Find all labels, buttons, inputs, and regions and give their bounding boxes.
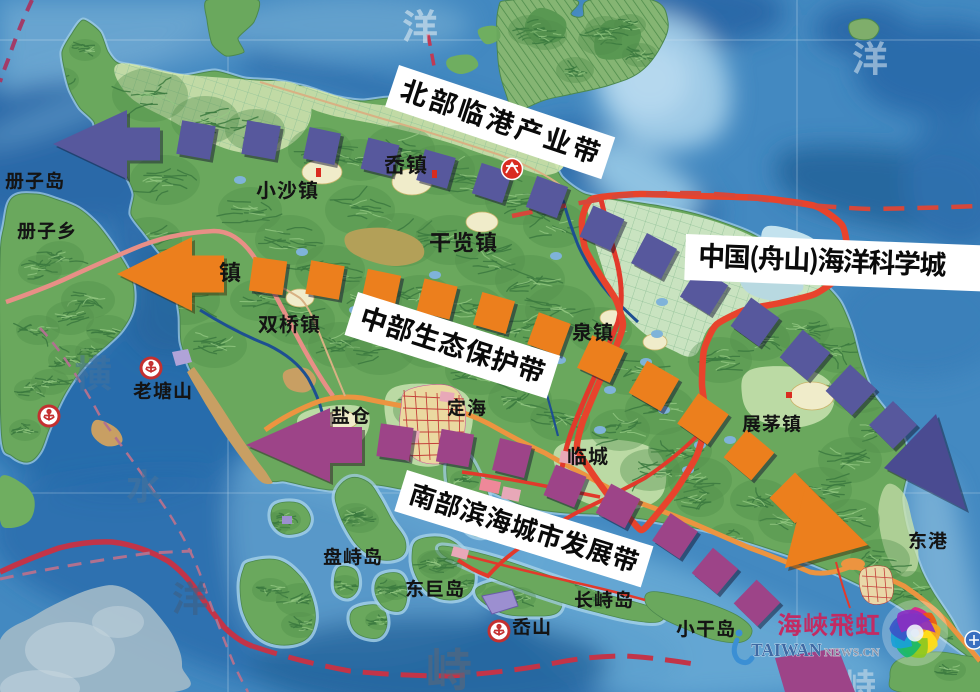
- svg-text:NEWS.CN: NEWS.CN: [824, 645, 880, 659]
- svg-text:TAIWAN: TAIWAN: [751, 640, 822, 660]
